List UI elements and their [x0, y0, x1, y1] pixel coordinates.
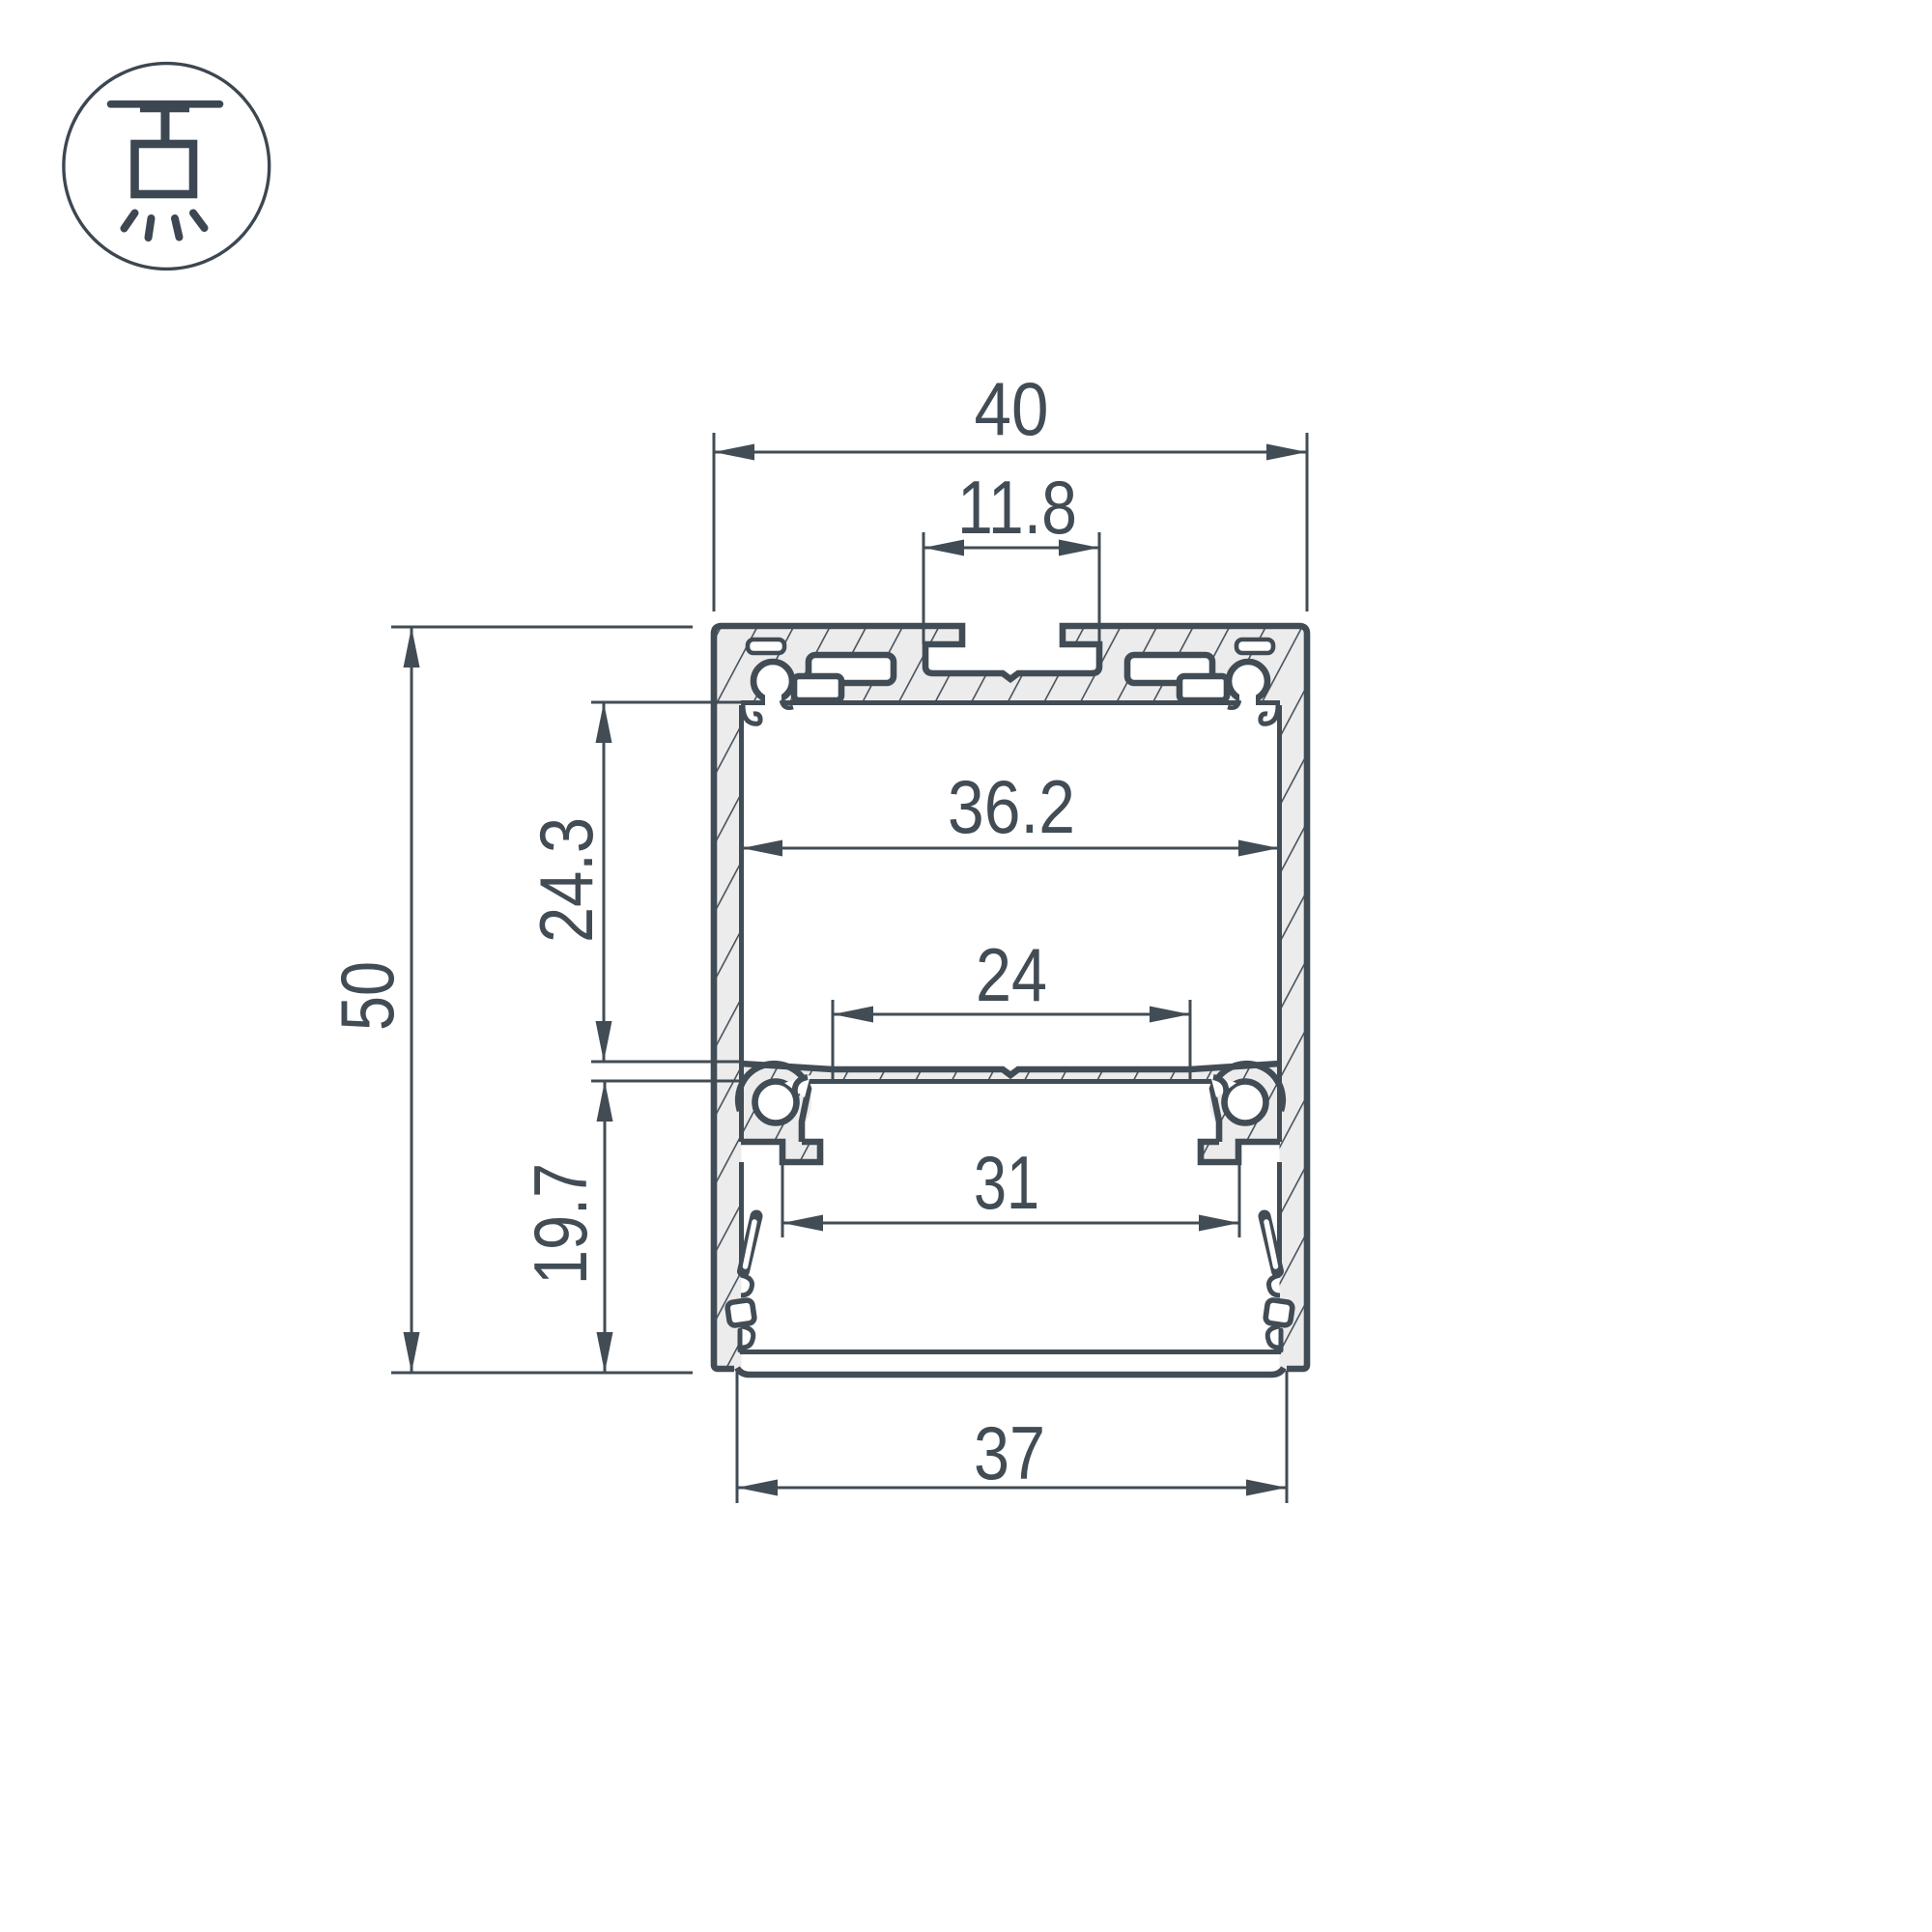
svg-text:31: 31 — [974, 1140, 1039, 1225]
svg-text:11.8: 11.8 — [957, 465, 1077, 550]
svg-text:36.2: 36.2 — [948, 764, 1075, 849]
svg-text:19.7: 19.7 — [518, 1163, 603, 1285]
svg-text:50: 50 — [325, 961, 410, 1031]
svg-text:40: 40 — [975, 366, 1049, 451]
svg-text:37: 37 — [974, 1410, 1045, 1495]
svg-text:24.3: 24.3 — [524, 817, 609, 943]
svg-text:24: 24 — [976, 932, 1047, 1017]
